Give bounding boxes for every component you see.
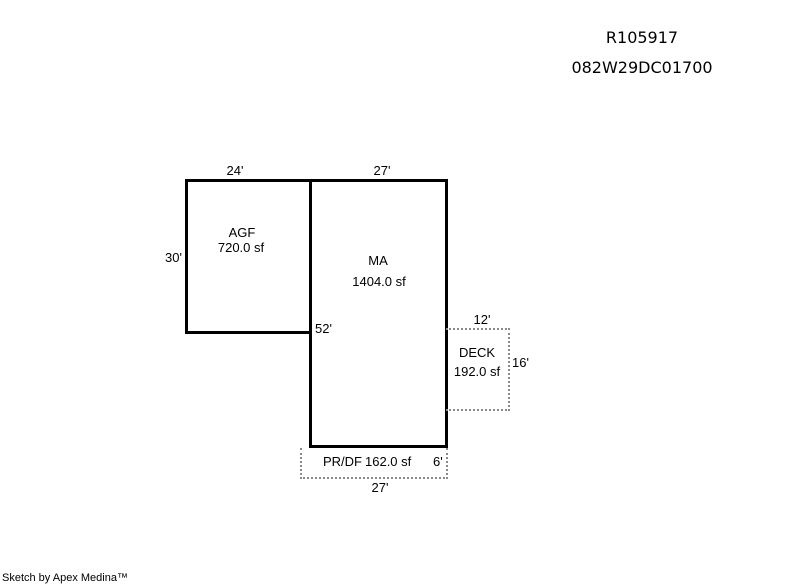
agf-height-dimension: 30' — [165, 251, 182, 266]
ma-height-dimension: 52' — [315, 322, 332, 337]
account-number: R105917 — [606, 30, 678, 46]
prdf-height-dimension: 6' — [433, 455, 443, 470]
prdf-area: 162.0 sf — [365, 455, 411, 470]
deck-label: DECK — [459, 346, 495, 361]
deck-height-dimension: 16' — [512, 356, 529, 371]
property-sketch-page: R105917 082W29DC01700 24' 30' AGF 720.0 … — [0, 0, 800, 587]
ma-label: MA — [368, 254, 388, 269]
prdf-label: PR/DF — [323, 455, 362, 470]
agf-width-dimension: 24' — [227, 164, 244, 179]
agf-outline — [185, 179, 312, 334]
map-taxlot-number: 082W29DC01700 — [571, 60, 712, 76]
ma-area: 1404.0 sf — [352, 275, 406, 290]
deck-width-dimension: 12' — [474, 313, 491, 328]
agf-area: 720.0 sf — [218, 241, 264, 256]
ma-width-dimension: 27' — [374, 164, 391, 179]
deck-area: 192.0 sf — [454, 365, 500, 380]
agf-label: AGF — [229, 226, 256, 241]
sketch-credit: Sketch by Apex Medina™ — [2, 572, 128, 584]
prdf-width-dimension: 27' — [372, 481, 389, 496]
ma-outline — [309, 179, 448, 448]
